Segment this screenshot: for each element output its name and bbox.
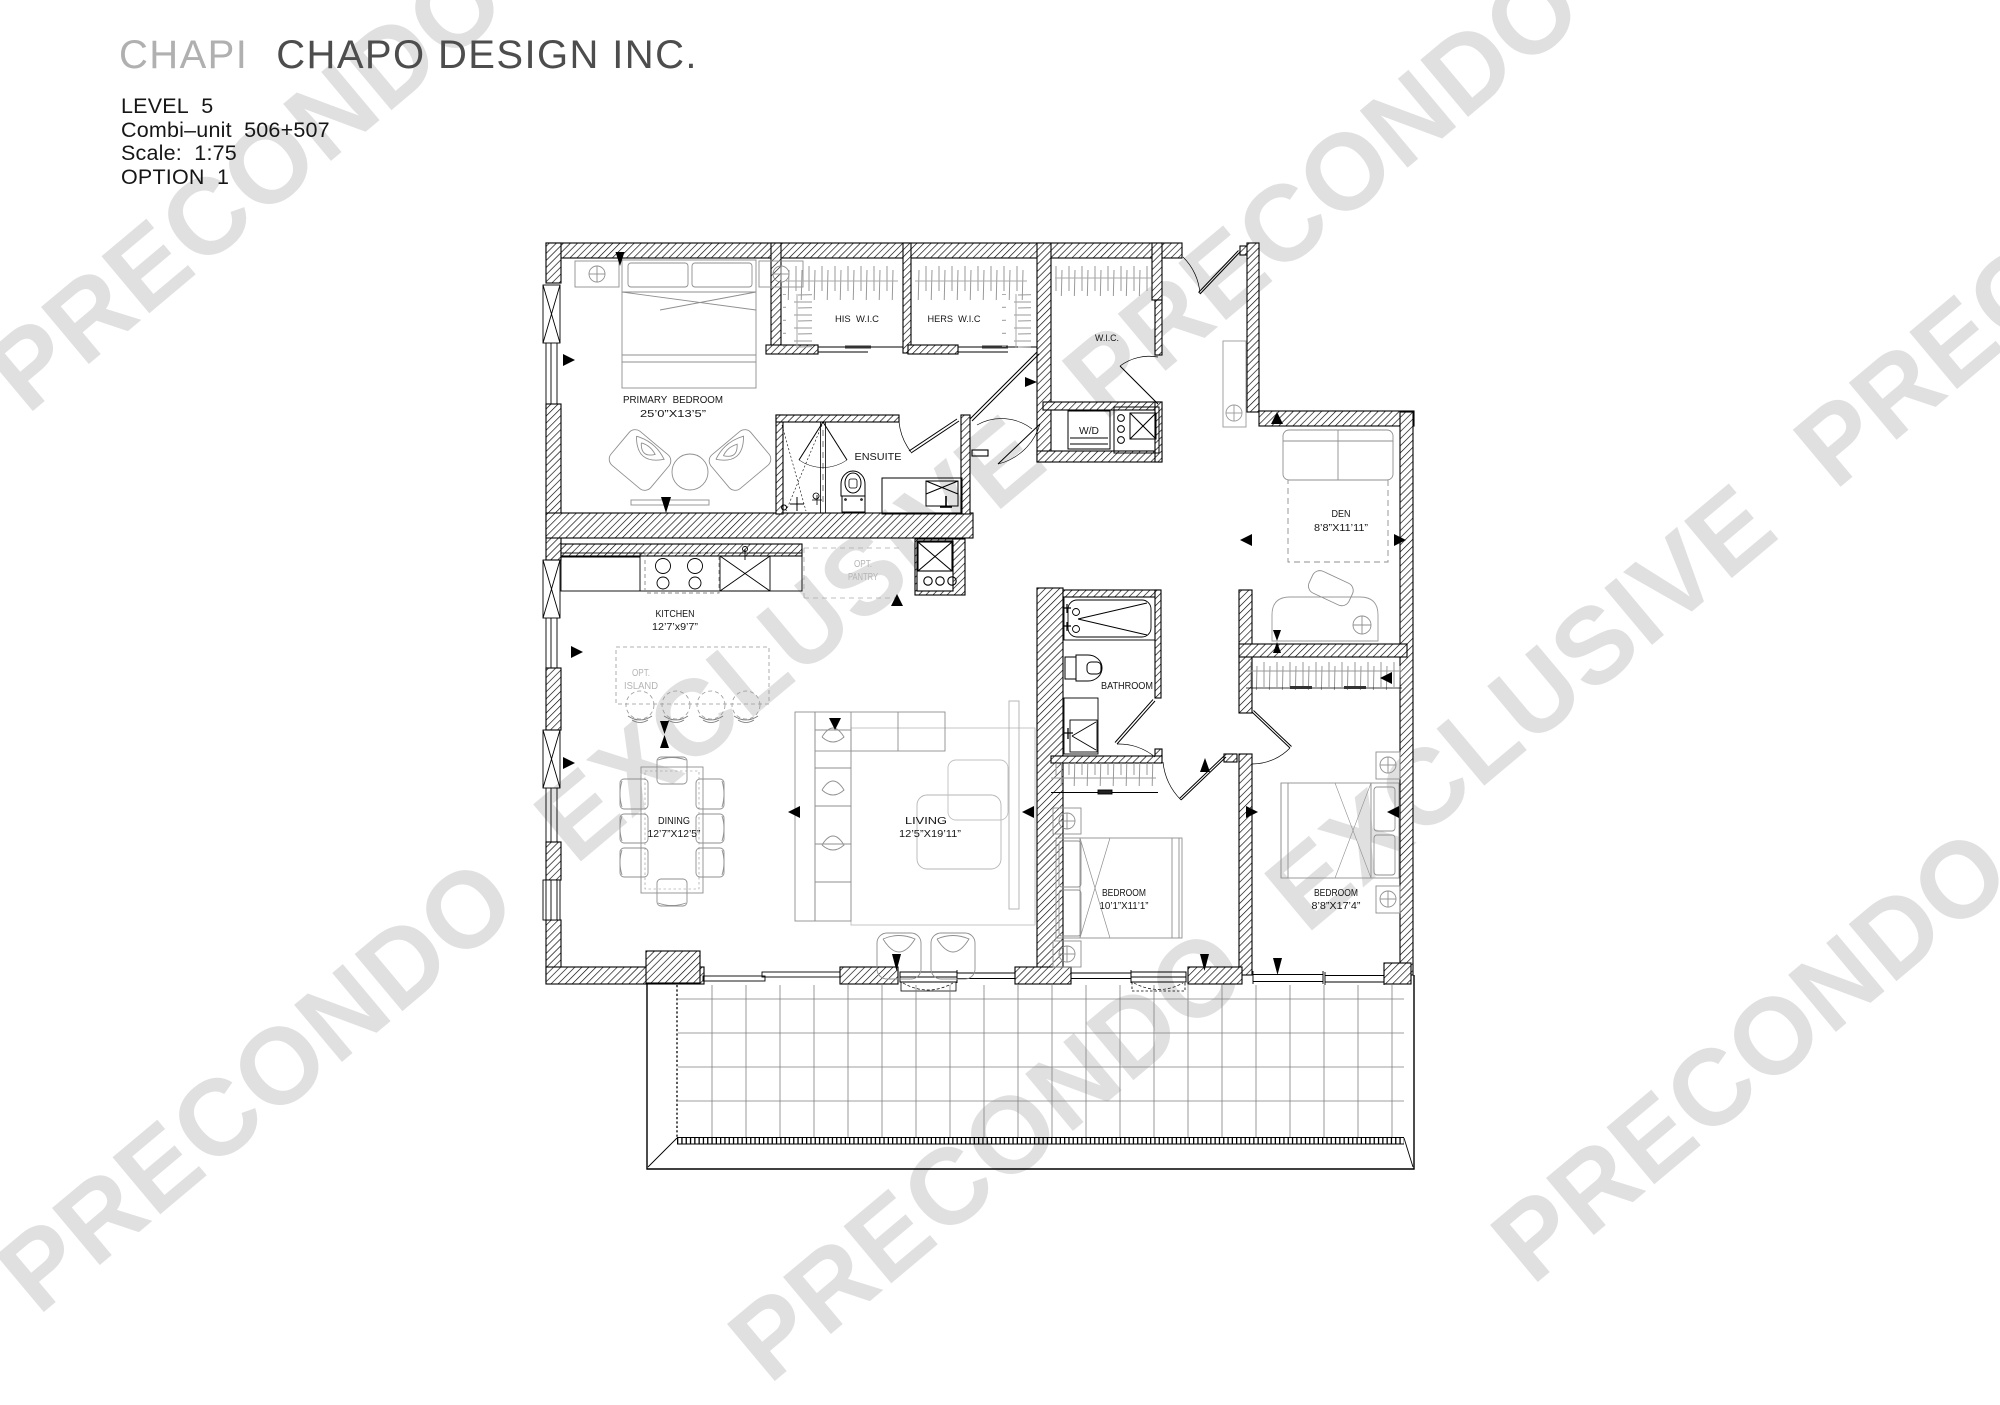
svg-text:ENSUITE: ENSUITE (855, 451, 902, 463)
svg-text:OPT.: OPT. (854, 558, 872, 570)
svg-text:PRIMARY BEDROOM: PRIMARY BEDROOM (623, 394, 723, 406)
svg-text:OPT.: OPT. (632, 667, 650, 679)
svg-text:8’8”X11’11”: 8’8”X11’11” (1314, 522, 1369, 534)
svg-text:PANTRY: PANTRY (848, 571, 878, 583)
svg-text:12’7’x9’7”: 12’7’x9’7” (652, 621, 699, 633)
svg-text:HERS W.I.C: HERS W.I.C (928, 314, 981, 325)
svg-text:BEDROOM: BEDROOM (1314, 887, 1358, 899)
svg-text:BATHROOM: BATHROOM (1101, 680, 1153, 692)
svg-text:W.I.C.: W.I.C. (1095, 333, 1119, 344)
svg-text:10’1”X11’1”: 10’1”X11’1” (1100, 900, 1149, 912)
svg-text:LIVING: LIVING (905, 815, 947, 827)
svg-text:HIS W.I.C: HIS W.I.C (835, 314, 879, 325)
svg-text:ISLAND: ISLAND (624, 680, 658, 692)
svg-text:W/D: W/D (1079, 426, 1099, 437)
svg-text:BEDROOM: BEDROOM (1102, 887, 1146, 899)
svg-text:12’5”X19’11”: 12’5”X19’11” (899, 828, 962, 840)
svg-text:KITCHEN: KITCHEN (656, 608, 695, 620)
svg-text:DEN: DEN (1332, 508, 1351, 520)
svg-text:12’7”X12’5”: 12’7”X12’5” (648, 828, 701, 840)
svg-text:25’0”X13’5”: 25’0”X13’5” (640, 408, 707, 420)
svg-text:DINING: DINING (658, 815, 690, 827)
svg-text:8’8”X17’4”: 8’8”X17’4” (1312, 900, 1362, 912)
